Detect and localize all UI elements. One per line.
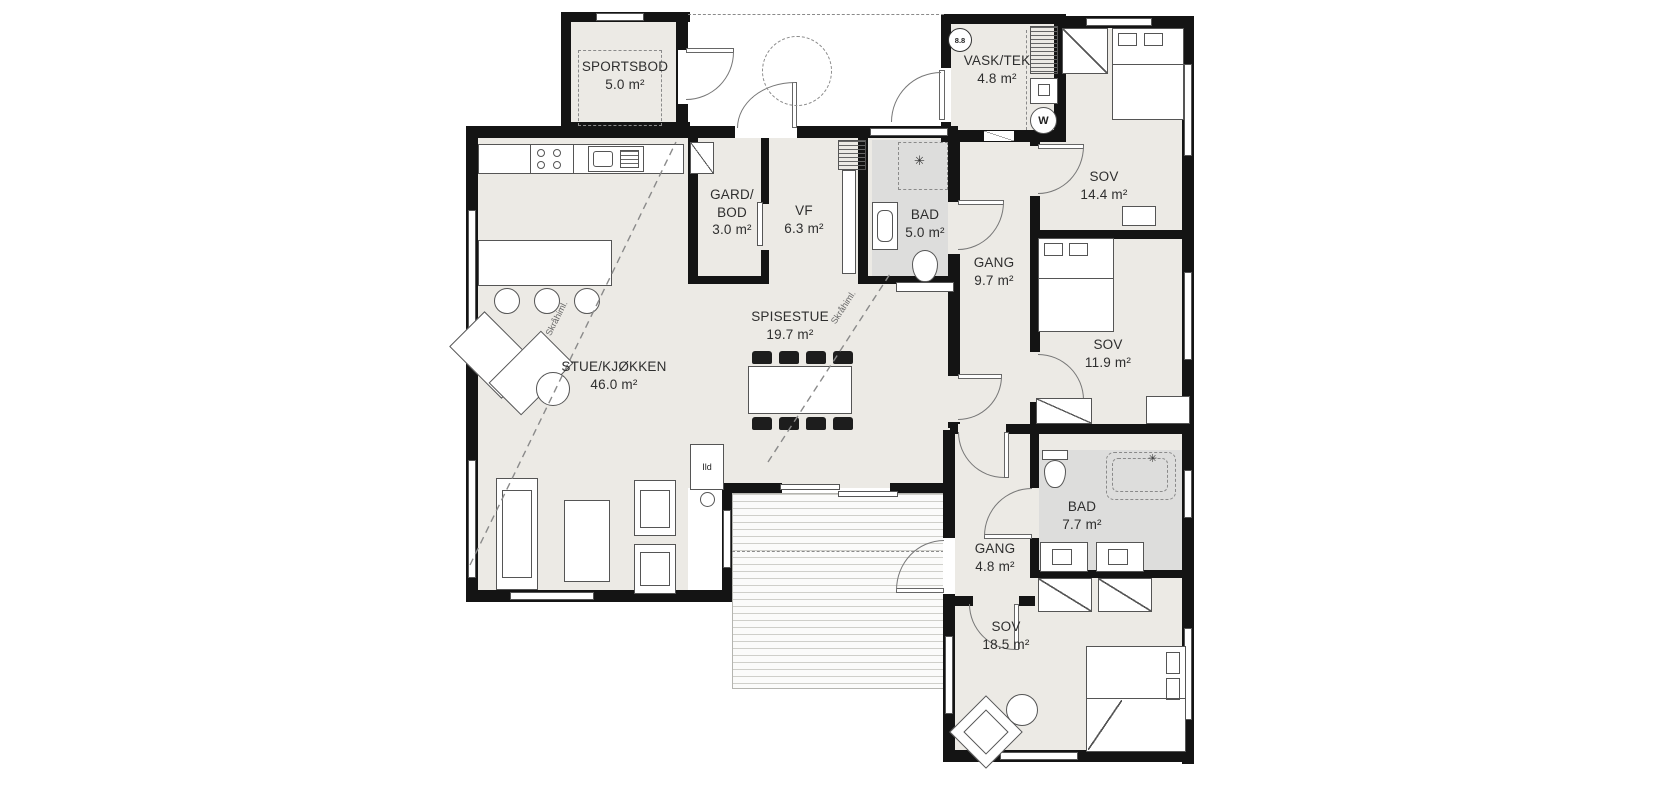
room-label-bad-77: BAD 7.7 m² [1036, 498, 1128, 533]
room-area: 7.7 m² [1036, 516, 1128, 534]
room-name: BOD [700, 204, 764, 222]
room-area: 4.8 m² [938, 70, 1056, 88]
room-name: SOV [1048, 168, 1160, 186]
room-area: 3.0 m² [700, 221, 764, 239]
room-label-vasktek: VASK/TEK 4.8 m² [938, 52, 1056, 87]
room-name: GARD/ [700, 186, 764, 204]
room-name: BAD [1036, 498, 1128, 516]
room-area: 5.0 m² [565, 76, 685, 94]
room-name: SPISESTUE [718, 308, 862, 326]
room-label-gardbod: GARD/ BOD 3.0 m² [700, 186, 764, 239]
room-name: STUE/KJØKKEN [536, 358, 692, 376]
room-label-sov-119: SOV 11.9 m² [1052, 336, 1164, 371]
room-area: 46.0 m² [536, 376, 692, 394]
room-name: SPORTSBOD [565, 58, 685, 76]
room-label-spisestue: SPISESTUE 19.7 m² [718, 308, 862, 343]
room-name: VF [772, 202, 836, 220]
room-name: SOV [1052, 336, 1164, 354]
room-name: VASK/TEK [938, 52, 1056, 70]
room-label-sov-185: SOV 18.5 m² [948, 618, 1064, 653]
room-area: 18.5 m² [948, 636, 1064, 654]
floor-plan: Ild 8.8 W ✳ ✳ [0, 0, 1670, 800]
room-label-gang-48: GANG 4.8 m² [953, 540, 1037, 575]
room-label-sov-144: SOV 14.4 m² [1048, 168, 1160, 203]
room-name: GANG [955, 254, 1033, 272]
ceiling-slope-lines [440, 0, 1210, 800]
room-area: 19.7 m² [718, 326, 862, 344]
room-area: 6.3 m² [772, 220, 836, 238]
room-label-bad-5: BAD 5.0 m² [893, 206, 957, 241]
room-area: 14.4 m² [1048, 186, 1160, 204]
room-name: GANG [953, 540, 1037, 558]
room-area: 11.9 m² [1052, 354, 1164, 372]
room-label-gang-97: GANG 9.7 m² [955, 254, 1033, 289]
room-name: SOV [948, 618, 1064, 636]
room-area: 4.8 m² [953, 558, 1037, 576]
room-area: 5.0 m² [893, 224, 957, 242]
room-label-stue-kjokken: STUE/KJØKKEN 46.0 m² [536, 358, 692, 393]
room-area: 9.7 m² [955, 272, 1033, 290]
room-label-sportsbod: SPORTSBOD 5.0 m² [565, 58, 685, 93]
room-name: BAD [893, 206, 957, 224]
room-label-vf: VF 6.3 m² [772, 202, 836, 237]
